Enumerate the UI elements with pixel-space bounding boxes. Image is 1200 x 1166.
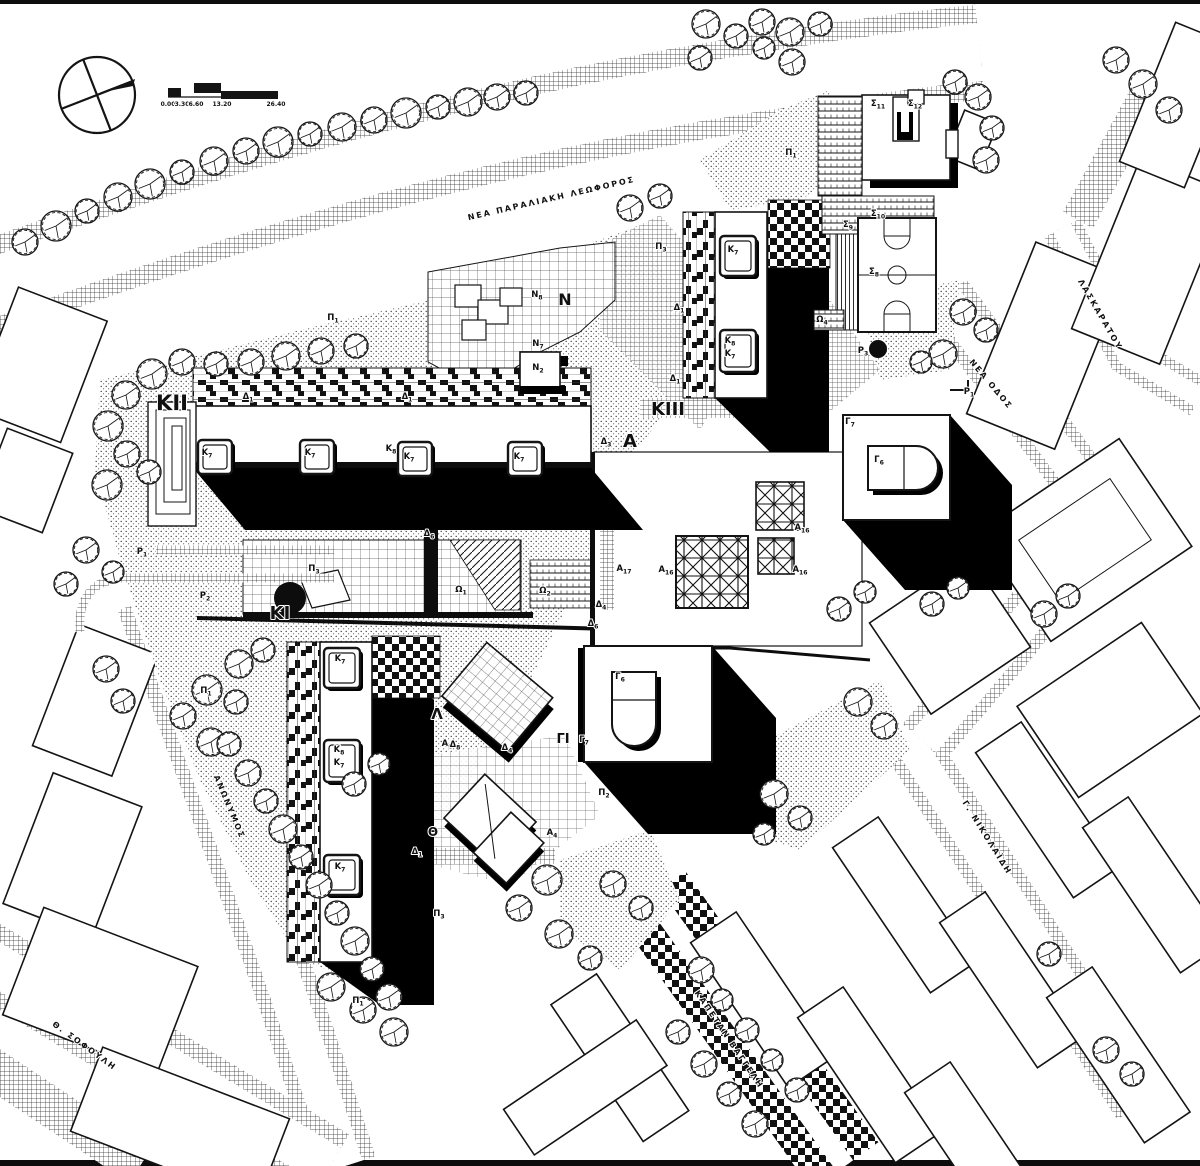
tree-icon xyxy=(341,927,369,955)
tree-icon xyxy=(361,107,387,133)
tree-icon xyxy=(688,957,714,983)
site-plan-canvas: ΝΕΑ ΠΑΡΑΛΙΑΚΗ ΛΕΩΦΟΡΟΣΛΑΣΚΑΡΑΤΟΥΝΕΑ ΟΔΟΣ… xyxy=(0,0,1200,1166)
tree-icon xyxy=(753,37,775,59)
tree-icon xyxy=(114,441,140,467)
tree-icon xyxy=(137,359,167,389)
tree-icon xyxy=(484,84,510,110)
tree-icon xyxy=(760,780,788,808)
tree-icon xyxy=(1156,97,1182,123)
tree-icon xyxy=(112,381,140,409)
top-frame-line xyxy=(0,0,1200,4)
tree-icon xyxy=(711,989,733,1011)
tree-icon xyxy=(308,338,334,364)
tree-icon xyxy=(328,113,356,141)
tree-icon xyxy=(317,973,345,1001)
tree-icon xyxy=(974,318,998,342)
tree-icon xyxy=(691,1051,717,1077)
zone-label: ΚΙ xyxy=(270,603,291,624)
tree-icon xyxy=(233,138,259,164)
tree-icon xyxy=(514,81,538,105)
tree-icon xyxy=(41,211,71,241)
tree-icon xyxy=(808,12,832,36)
tree-icon xyxy=(137,460,161,484)
tree-icon xyxy=(169,349,195,375)
tree-icon xyxy=(1093,1037,1119,1063)
tree-icon xyxy=(1129,70,1157,98)
tree-icon xyxy=(943,70,967,94)
tree-icon xyxy=(920,592,944,616)
tree-icon xyxy=(238,349,264,375)
tree-icon xyxy=(910,351,932,373)
zone-label: Λ xyxy=(431,705,443,723)
tree-icon xyxy=(779,49,805,75)
tree-icon xyxy=(368,753,390,775)
tree-icon xyxy=(844,688,872,716)
tree-icon xyxy=(344,334,368,358)
tree-icon xyxy=(1037,942,1061,966)
tree-icon xyxy=(289,845,313,869)
tree-icon xyxy=(506,895,532,921)
tree-icon xyxy=(749,9,775,35)
tree-icon xyxy=(93,411,123,441)
tree-icon xyxy=(854,581,876,603)
tree-icon xyxy=(1103,47,1129,73)
scale-tick: 6.60 xyxy=(189,101,204,108)
tree-icon xyxy=(263,127,293,157)
tree-icon xyxy=(376,984,402,1010)
tree-icon xyxy=(54,572,78,596)
zone-label: Α xyxy=(623,431,637,452)
zone-label: ΓΙ xyxy=(556,732,569,747)
tree-icon xyxy=(102,561,124,583)
tree-icon xyxy=(217,732,241,756)
tree-icon xyxy=(973,147,999,173)
tree-icon xyxy=(104,183,132,211)
tree-icon xyxy=(170,703,196,729)
tree-icon xyxy=(204,352,228,376)
tree-icon xyxy=(325,901,349,925)
tree-icon xyxy=(545,920,573,948)
tree-icon xyxy=(224,690,248,714)
tree-icon xyxy=(170,160,194,184)
tree-icon xyxy=(380,1018,408,1046)
tree-icon xyxy=(391,98,421,128)
tree-icon xyxy=(225,650,253,678)
plan-frame: ΝΕΑ ΠΑΡΑΛΙΑΚΗ ΛΕΩΦΟΡΟΣΛΑΣΚΑΡΑΤΟΥΝΕΑ ΟΔΟΣ… xyxy=(0,0,1200,1166)
tree-icon xyxy=(111,689,135,713)
tree-icon xyxy=(761,1049,783,1071)
tree-icon xyxy=(272,342,300,370)
tree-icon xyxy=(298,122,322,146)
tree-icon xyxy=(753,823,775,845)
tree-icon xyxy=(454,88,482,116)
tree-icon xyxy=(688,46,712,70)
scale-tick: 26.40 xyxy=(267,101,286,108)
tree-icon xyxy=(666,1020,690,1044)
tree-icon xyxy=(724,24,748,48)
tree-icon xyxy=(600,871,626,897)
zone-label: ΚΙΙΙ xyxy=(651,399,685,420)
tree-icon xyxy=(342,772,366,796)
tree-icon xyxy=(135,169,165,199)
tree-icon xyxy=(648,184,672,208)
zone-label: Ν xyxy=(558,290,571,309)
tree-icon xyxy=(1056,584,1080,608)
tree-icon xyxy=(578,946,602,970)
tree-icon xyxy=(692,10,720,38)
tree-icon xyxy=(75,199,99,223)
scale-tick: 0.00 xyxy=(161,101,176,108)
tree-icon xyxy=(269,815,297,843)
tree-icon xyxy=(92,470,122,500)
terraces-s10 xyxy=(818,96,862,196)
tree-icon xyxy=(947,577,969,599)
tree-icon xyxy=(235,760,261,786)
tree-icon xyxy=(360,957,384,981)
tree-icon xyxy=(742,1111,768,1137)
tree-icon xyxy=(93,656,119,682)
tree-icon xyxy=(1031,601,1057,627)
tree-icon xyxy=(871,713,897,739)
tree-icon xyxy=(785,1078,809,1102)
dense-tree-icon xyxy=(869,340,887,358)
tree-icon xyxy=(980,116,1004,140)
tree-icon xyxy=(1120,1062,1144,1086)
tree-icon xyxy=(788,806,812,830)
zone-label: Θ xyxy=(428,825,438,839)
tree-icon xyxy=(929,340,957,368)
tree-icon xyxy=(629,896,653,920)
tree-icon xyxy=(254,789,278,813)
tree-icon xyxy=(950,299,976,325)
tree-icon xyxy=(717,1082,741,1106)
zone-label: ΚΙΙ xyxy=(156,391,188,415)
tree-icon xyxy=(426,95,450,119)
scale-tick: 13.20 xyxy=(213,101,232,108)
tree-icon xyxy=(12,229,38,255)
scale-tick: 3.30 xyxy=(175,101,190,108)
tree-icon xyxy=(776,18,804,46)
tree-icon xyxy=(617,195,643,221)
tree-icon xyxy=(532,865,562,895)
tree-icon xyxy=(73,537,99,563)
tree-icon xyxy=(735,1018,759,1042)
tree-icon xyxy=(200,147,228,175)
tree-icon xyxy=(306,872,332,898)
tree-icon xyxy=(965,84,991,110)
tree-icon xyxy=(827,597,851,621)
tree-icon xyxy=(251,638,275,662)
